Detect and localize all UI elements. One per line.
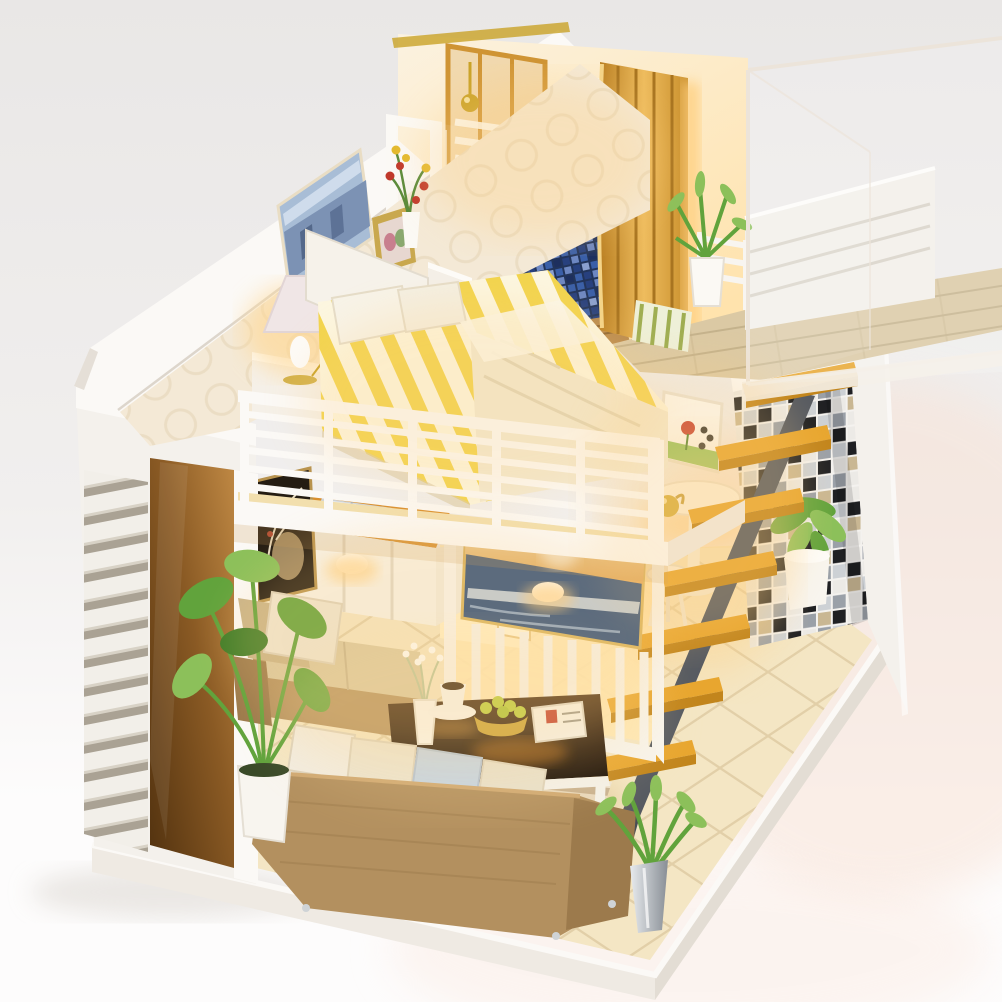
loft-plant-vase bbox=[690, 258, 724, 306]
light-leak bbox=[682, 80, 700, 348]
dollhouse-photo bbox=[0, 0, 1002, 1002]
plant-pot-large bbox=[238, 766, 290, 842]
flower-vase bbox=[402, 212, 420, 248]
acrylic-display-case bbox=[742, 38, 1002, 402]
louver-shutters bbox=[84, 470, 148, 852]
sofa-armrest bbox=[566, 798, 636, 930]
screenshot-root bbox=[0, 0, 1002, 1002]
